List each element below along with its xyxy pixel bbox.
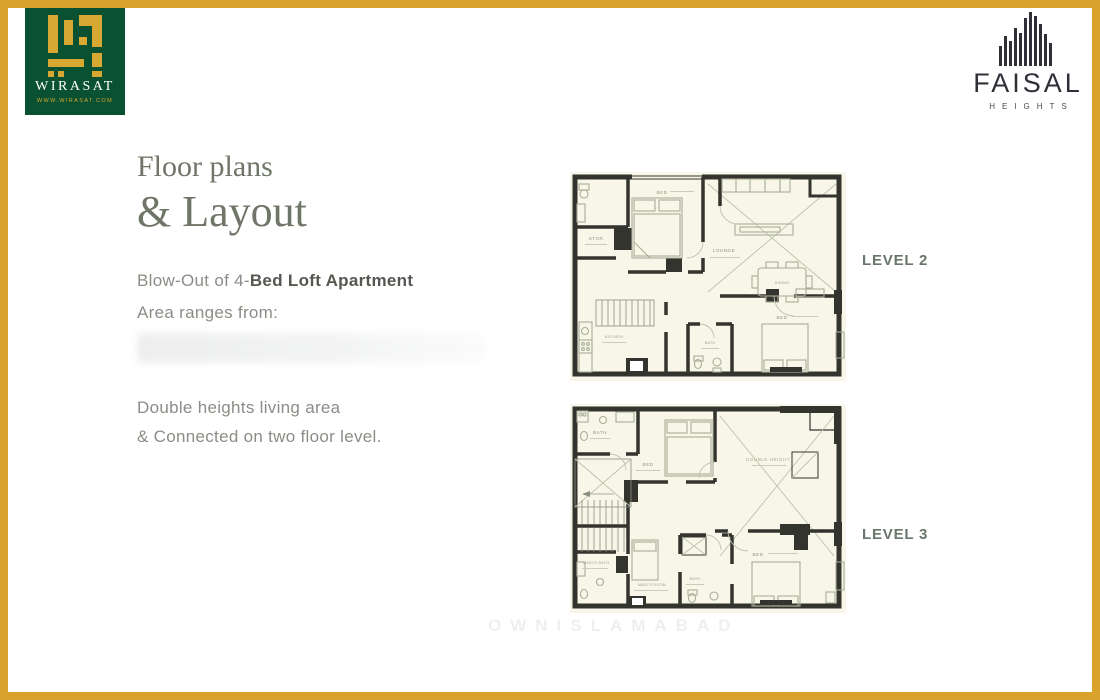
room-label-kitchen: KITCHEN	[605, 335, 623, 339]
room-label-bed-bottom: BED	[777, 315, 788, 320]
level3-floor-plan: BATH BED DOUBLE HEIGHT MAID'S BATH MAID'…	[570, 404, 846, 613]
wirasat-calligraphy-icon	[46, 15, 104, 77]
feature-text: Double heights living area & Connected o…	[137, 393, 507, 451]
level2-floor-plan-drawing: STOR BED LOUNGE DINING KITCHEN BATH BED	[570, 172, 846, 381]
room-label-double-height: DOUBLE HEIGHT	[746, 457, 790, 462]
page-title-line1: Floor plans	[137, 150, 507, 184]
room-label-bed-bottom: BED	[753, 552, 764, 557]
room-label-bath-bottom: BATH	[690, 577, 701, 581]
subtitle-bold: Bed Loft Apartment	[250, 271, 413, 290]
page: WIRASAT WWW.WIRASAT.COM FAISAL HEIGHTS F…	[0, 0, 1100, 700]
level2-label: LEVEL 2	[862, 252, 928, 269]
room-label-dining: DINING	[775, 281, 790, 285]
wirasat-logo: WIRASAT WWW.WIRASAT.COM	[25, 8, 125, 115]
room-label-lounge: LOUNGE	[713, 248, 735, 253]
watermark-text: OWNISLAMABAD	[488, 616, 740, 636]
subtitle-prefix: Blow-Out of 4-	[137, 271, 250, 290]
subtitle: Blow-Out of 4-Bed Loft Apartment	[137, 271, 507, 291]
wirasat-name: WIRASAT	[35, 79, 115, 95]
level3-label: LEVEL 3	[862, 526, 928, 543]
skyline-icon	[991, 10, 1065, 66]
room-label-bath-top: BATH	[593, 430, 607, 435]
wirasat-website: WWW.WIRASAT.COM	[37, 98, 113, 104]
faisal-tagline: HEIGHTS	[982, 102, 1074, 111]
level3-floor-plan-drawing: BATH BED DOUBLE HEIGHT MAID'S BATH MAID'…	[570, 404, 846, 613]
room-label-bed-top: BED	[643, 462, 654, 467]
page-title-line2: & Layout	[137, 186, 507, 237]
faisal-name: FAISAL	[973, 68, 1083, 99]
intro-block: Floor plans & Layout Blow-Out of 4-Bed L…	[137, 150, 507, 451]
room-label-maids-room: MAID'S ROOM	[638, 583, 666, 587]
redacted-area-value	[137, 333, 487, 363]
feature-line1: Double heights living area	[137, 393, 507, 422]
room-label-bath: BATH	[705, 341, 716, 345]
room-label-stor: STOR	[589, 236, 604, 241]
feature-line2: & Connected on two floor level.	[137, 422, 507, 451]
faisal-heights-logo: FAISAL HEIGHTS	[958, 10, 1098, 120]
level2-floor-plan: STOR BED LOUNGE DINING KITCHEN BATH BED	[570, 172, 846, 381]
area-ranges-label: Area ranges from:	[137, 303, 507, 323]
room-label-maids-bath: MAID'S BATH	[583, 561, 609, 565]
room-label-bed-top: BED	[657, 190, 668, 195]
